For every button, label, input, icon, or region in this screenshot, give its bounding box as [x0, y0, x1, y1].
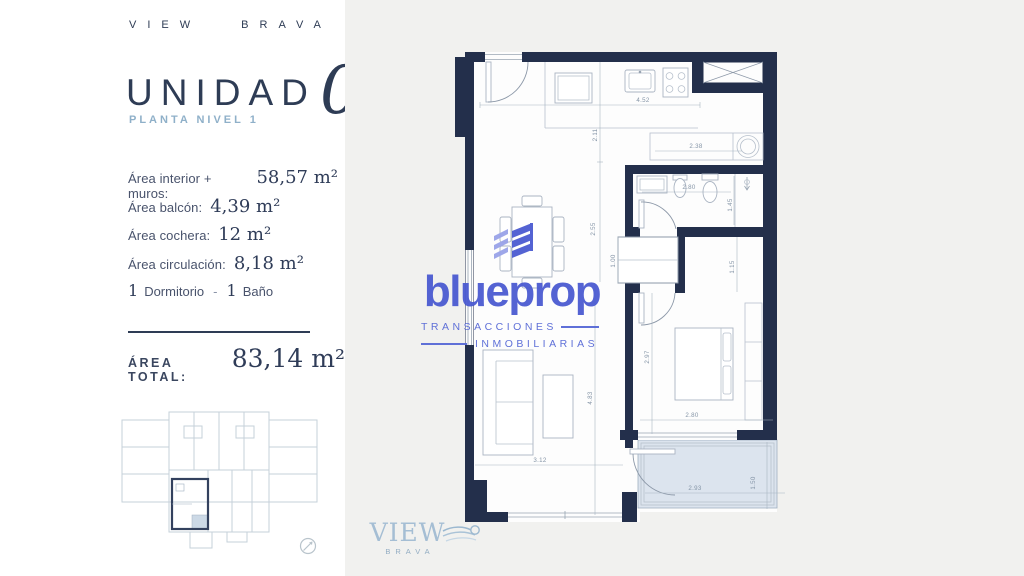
dimension-label: 2.97	[644, 350, 651, 364]
coffee-table	[543, 375, 573, 438]
detail-value: 4,39 m²	[210, 196, 280, 217]
unit-title: UNIDAD	[126, 72, 316, 114]
dimension-label: 1.00	[610, 254, 617, 268]
dimension-label: 4.52	[636, 97, 650, 104]
dimension-label: 1.15	[729, 260, 736, 274]
view-logo-text: VIEW	[370, 518, 446, 547]
plan-panel: 4.522.112.382.801.452.551.001.152.974.83…	[345, 0, 1024, 576]
keyplan-balcony	[192, 515, 208, 529]
dimension-label: 2.55	[590, 222, 597, 236]
storage-hatch	[703, 62, 763, 83]
detail-row-balcon: Área balcón: 4,39 m²	[128, 196, 338, 225]
kitchen-sink	[625, 70, 655, 92]
project-name: VIEW BRAVA	[129, 19, 332, 31]
area-details: Área interior + muros: 58,57 m² Área bal…	[128, 167, 338, 310]
dimension-label: 1.45	[727, 198, 734, 212]
building-key-plan	[112, 406, 327, 561]
divider-line	[128, 331, 310, 333]
floor-level-label: PLANTA NIVEL 1	[129, 114, 259, 126]
detail-label: Área balcón:	[128, 200, 202, 215]
detail-row-circulacion: Área circulación: 8,18 m²	[128, 253, 338, 282]
total-area-value: 83,14 m²	[232, 344, 345, 373]
wall-right	[763, 52, 777, 440]
compass-icon	[298, 536, 318, 556]
dimension-label: 2.11	[592, 128, 599, 141]
dimension-label: 4.83	[587, 391, 594, 405]
detail-row-interior: Área interior + muros: 58,57 m²	[128, 167, 338, 196]
detail-value: 58,57 m²	[256, 167, 338, 188]
dimension-label: 2.80	[685, 412, 699, 419]
bathrooms-label: Baño	[243, 284, 273, 299]
bathrooms-count: 1	[227, 281, 237, 300]
bedrooms-label: Dormitorio	[144, 284, 204, 299]
brava-logo-text: BRAVA	[367, 547, 453, 556]
info-panel: VIEW BRAVA UNIDAD 05 PLANTA NIVEL 1 Área…	[0, 0, 345, 576]
bathroom-vanity	[637, 176, 667, 193]
detail-value: 8,18 m²	[234, 253, 304, 274]
dimension-label: 2.80	[682, 184, 696, 191]
detail-label: Área circulación:	[128, 257, 226, 272]
dimension-label: 1.50	[750, 476, 757, 490]
bed	[675, 328, 733, 400]
bidet	[702, 174, 718, 203]
total-area: ÁREA TOTAL: 83,14 m²	[128, 344, 345, 384]
detail-row-cochera: Área cochera: 12 m²	[128, 224, 338, 253]
wave-icon	[442, 521, 484, 547]
dimension-label: 2.93	[688, 485, 702, 492]
sofa	[483, 350, 533, 455]
detail-value: 12 m²	[218, 224, 271, 245]
total-area-label: ÁREA TOTAL:	[128, 356, 218, 384]
stove	[663, 68, 688, 97]
window-left	[466, 250, 474, 345]
brochure-page: { "brand": { "top": "VIEW BRAVA" }, "uni…	[0, 0, 1024, 576]
dimension-label: 2.38	[689, 143, 703, 150]
bedrooms-count: 1	[128, 281, 138, 300]
dimension-label: 3.12	[533, 457, 547, 464]
fridge	[555, 73, 592, 103]
window-bedroom	[638, 430, 737, 440]
hall-closet	[618, 237, 678, 283]
floor-plan: 4.522.112.382.801.452.551.001.152.974.83…	[455, 45, 789, 527]
wall-bathroom-top	[625, 165, 763, 174]
detail-label: Área cochera:	[128, 228, 210, 243]
view-brava-logo: VIEW BRAVA	[367, 517, 487, 556]
rooms-row: 1 Dormitorio - 1 Baño	[128, 281, 338, 310]
separator: -	[213, 284, 217, 299]
